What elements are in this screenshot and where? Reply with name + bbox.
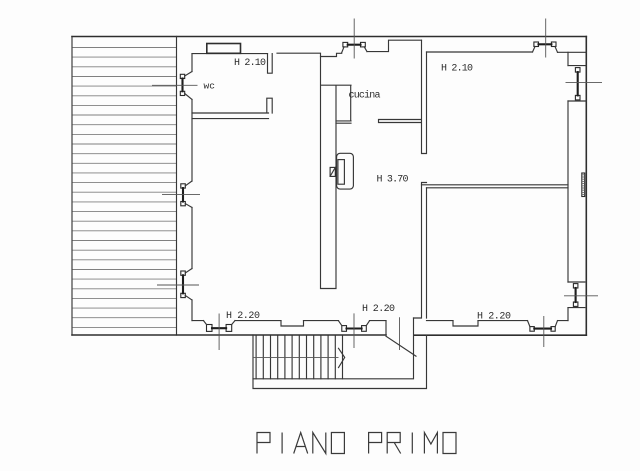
svg-text:H 2.20: H 2.20	[226, 311, 260, 322]
svg-text:H 3.70: H 3.70	[377, 175, 409, 186]
svg-text:H 2.10: H 2.10	[441, 64, 473, 75]
svg-text:H 2.20: H 2.20	[362, 304, 395, 315]
svg-text:cucina: cucina	[349, 90, 381, 102]
svg-text:H 2.20: H 2.20	[477, 312, 511, 323]
svg-text:H 2.10: H 2.10	[234, 58, 266, 69]
svg-text:wc: wc	[204, 81, 216, 92]
